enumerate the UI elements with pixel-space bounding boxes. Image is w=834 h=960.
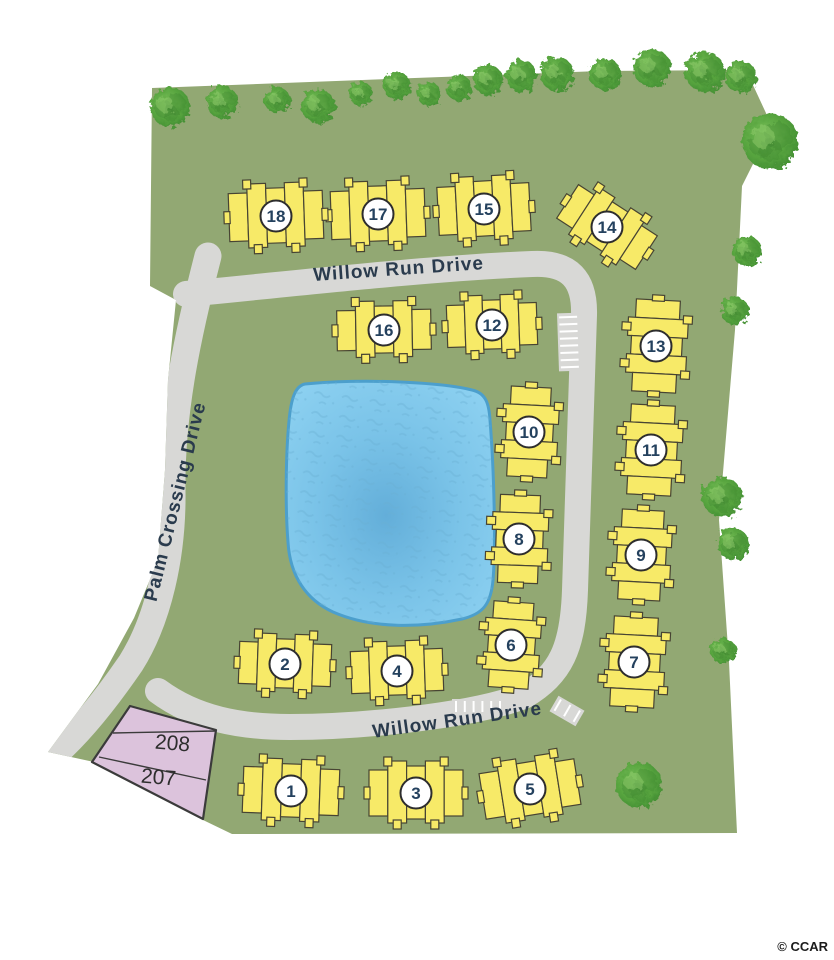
tree-icon xyxy=(301,89,335,123)
building-number-2: 2 xyxy=(280,655,289,674)
building-number-18: 18 xyxy=(267,207,286,226)
site-plan-stage: 208207Willow Run DriveWillow Run DrivePa… xyxy=(0,0,834,960)
tree-icon xyxy=(702,477,742,517)
tree-icon xyxy=(732,236,762,266)
tree-icon xyxy=(685,52,725,92)
building-number-11: 11 xyxy=(642,441,660,460)
tree-icon xyxy=(446,75,472,101)
parking-east xyxy=(557,313,583,372)
tree-icon xyxy=(206,86,238,118)
building-number-9: 9 xyxy=(636,546,645,565)
building-number-10: 10 xyxy=(520,423,539,442)
building-number-12: 12 xyxy=(483,316,502,335)
tree-icon xyxy=(264,87,290,113)
tree-icon xyxy=(710,638,736,664)
building-number-15: 15 xyxy=(475,200,494,219)
building-number-17: 17 xyxy=(369,205,388,224)
building-number-6: 6 xyxy=(506,636,515,655)
tree-icon xyxy=(633,49,671,87)
building-number-8: 8 xyxy=(514,530,523,549)
lot-number-208: 208 xyxy=(154,731,191,757)
tree-icon xyxy=(383,72,411,100)
tree-icon xyxy=(742,113,798,169)
tree-icon xyxy=(616,762,662,808)
tree-icon xyxy=(540,57,574,91)
copyright-credit: © CCAR xyxy=(777,939,828,954)
building-number-7: 7 xyxy=(629,653,638,672)
lot-number-207: 207 xyxy=(140,765,177,791)
pond-texture xyxy=(286,381,494,625)
building-number-14: 14 xyxy=(598,218,617,237)
building-number-3: 3 xyxy=(411,784,420,803)
tree-icon xyxy=(150,87,190,127)
building-number-5: 5 xyxy=(525,780,534,799)
tree-icon xyxy=(717,528,749,560)
tree-icon xyxy=(349,82,373,106)
tree-icon xyxy=(473,65,503,95)
building-number-1: 1 xyxy=(286,782,295,801)
tree-icon xyxy=(417,82,441,106)
building-number-13: 13 xyxy=(647,337,666,356)
tree-icon xyxy=(725,61,757,93)
site-map: 208207Willow Run DriveWillow Run DrivePa… xyxy=(0,0,834,960)
building-number-4: 4 xyxy=(392,662,402,681)
tree-icon xyxy=(589,58,621,90)
tree-icon xyxy=(505,60,537,92)
tree-icon xyxy=(721,297,749,325)
building-number-16: 16 xyxy=(375,321,394,340)
